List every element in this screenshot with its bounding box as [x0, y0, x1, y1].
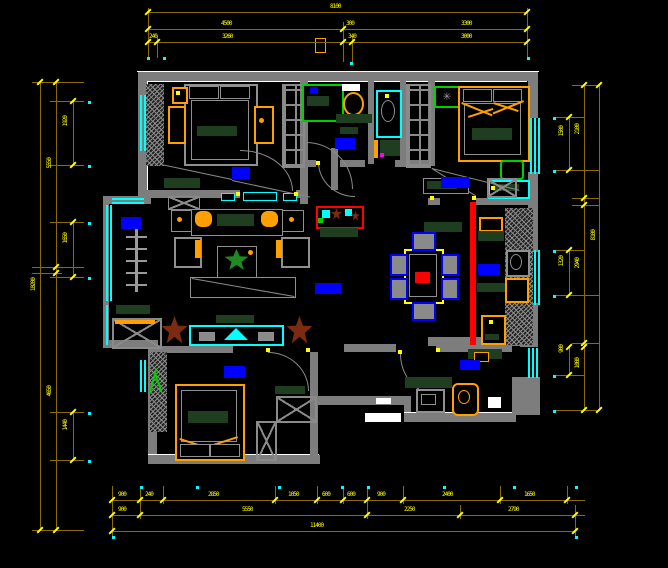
room-label-block-bedroom-bottom-left	[224, 366, 245, 378]
room-label-block-bathroom	[335, 138, 355, 149]
cad-canvas[interactable]: ✳	[0, 0, 668, 568]
room-label-block-bedroom-top-right	[441, 177, 469, 188]
room-label-layer	[0, 0, 668, 568]
room-label-block-kitchen-cabinets	[478, 264, 500, 275]
room-label-block-kitchen-room	[460, 360, 480, 370]
room-label-block-living-room	[315, 283, 341, 294]
room-label-block-bedroom-top-left	[232, 167, 250, 179]
room-label-block-balcony	[121, 217, 141, 229]
